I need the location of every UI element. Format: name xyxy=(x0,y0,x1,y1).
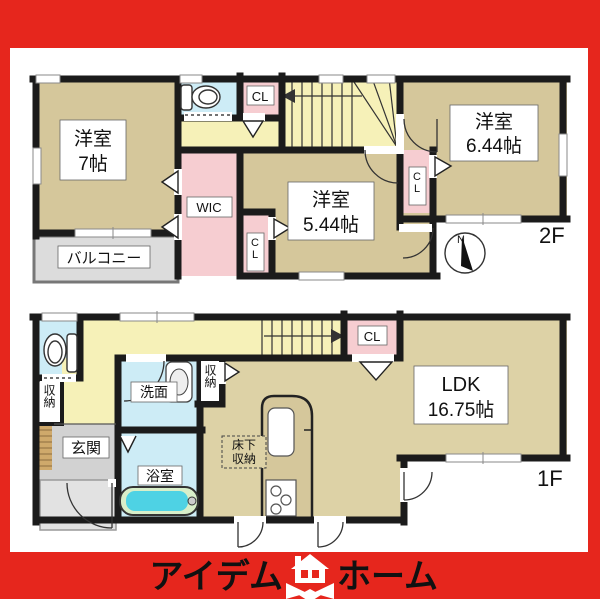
balcony-label: バルコニー xyxy=(67,250,142,267)
logo-text-left: アイデム xyxy=(149,557,283,596)
yokushitsu-label: 浴室 xyxy=(146,468,174,484)
senmen-label: 洗面 xyxy=(140,384,168,400)
kitchen-sink-icon xyxy=(268,408,294,456)
room-label-ldk-size: 16.75帖 xyxy=(428,399,495,421)
kitchen-counter-icon xyxy=(262,396,312,522)
wic-label: WIC xyxy=(196,200,221,215)
closet-label-2f-top: CL xyxy=(252,89,269,104)
room-2f-stairs xyxy=(282,76,400,150)
toilet-2f-icon xyxy=(181,85,220,110)
room-2f-hall xyxy=(178,118,282,150)
closet-label-2f-mid: CL xyxy=(249,237,261,261)
room-label-yoshitsu7-name: 洋室 xyxy=(74,128,112,150)
genkan-step-stripes xyxy=(38,424,52,470)
closet-label-1f: CL xyxy=(364,329,381,344)
room-label-yoshitsu544-size: 5.44帖 xyxy=(303,214,359,236)
room-label-yoshitsu644-size: 6.44帖 xyxy=(466,135,522,157)
floorplan-canvas: 洋室 7帖 洋室 5.44帖 洋室 6.44帖 CL WIC CL CL バルコ… xyxy=(0,0,600,599)
room-label-yoshitsu644-name: 洋室 xyxy=(475,111,513,133)
closet-label-2f-right: CL xyxy=(411,171,423,195)
floorplan-flyer: 洋室 7帖 洋室 5.44帖 洋室 6.44帖 CL WIC CL CL バルコ… xyxy=(0,0,600,599)
floor-label-1f: 1F xyxy=(537,466,563,491)
logo-text-right: ホーム xyxy=(337,558,438,596)
shuno-left-label: 収納 xyxy=(42,384,56,408)
room-label-yoshitsu544-name: 洋室 xyxy=(312,189,350,211)
floor-label-2f: 2F xyxy=(539,223,565,248)
room-label-ldk-name: LDK xyxy=(442,374,482,396)
compass-north-label: N xyxy=(457,234,465,246)
shuno-mid-label: 収納 xyxy=(203,364,217,388)
genkan-label: 玄関 xyxy=(71,440,101,457)
yukashita-label-line1: 床下 xyxy=(232,438,256,452)
yukashita-label-line2: 収納 xyxy=(232,452,256,466)
bathtub-icon xyxy=(120,487,198,515)
stove-icon xyxy=(266,480,296,516)
room-label-yoshitsu7-size: 7帖 xyxy=(78,153,108,175)
